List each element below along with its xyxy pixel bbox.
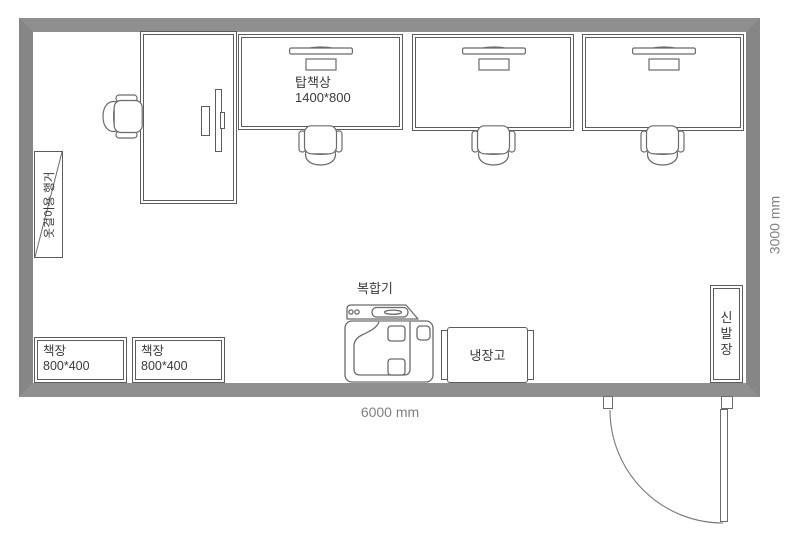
- chair-1[interactable]: [102, 94, 143, 139]
- chair-3[interactable]: [471, 125, 516, 166]
- coat-hanger[interactable]: 옷걸이용 행거: [34, 151, 63, 258]
- office-chair-icon: [640, 125, 685, 166]
- monitor-1-base: [201, 106, 210, 136]
- office-chair-icon: [298, 125, 343, 166]
- shoe-cabinet-char: 발: [721, 326, 733, 342]
- printer-label: 복합기: [357, 281, 393, 296]
- shoe-cabinet[interactable]: 신 발 장: [710, 285, 743, 383]
- bottom-dimension-label: 6000 mm: [330, 404, 450, 420]
- office-chair-icon: [471, 125, 516, 166]
- monitor-top-icon: [462, 41, 526, 71]
- fridge[interactable]: 냉장고: [447, 327, 528, 383]
- monitor-1-stand: [220, 112, 225, 129]
- fridge-label: 냉장고: [470, 348, 506, 363]
- monitor-top-icon: [632, 41, 696, 71]
- bookshelf-label-size: 800*400: [43, 359, 126, 374]
- door-swing-arc: [606, 405, 728, 527]
- bookshelf-label-name: 책장: [43, 344, 126, 359]
- monitor-3[interactable]: [462, 41, 526, 71]
- desk-4[interactable]: [582, 34, 744, 131]
- shoe-cabinet-char: 장: [721, 342, 733, 358]
- office-chair-icon: [102, 94, 143, 139]
- fridge-right-hinge: [527, 330, 534, 380]
- desk-label-name: 탑책상: [295, 75, 351, 90]
- desk-2[interactable]: 탑책상 1400*800: [238, 34, 403, 130]
- printer[interactable]: [344, 302, 435, 383]
- monitor-top-icon: [289, 41, 353, 71]
- desk-label-size: 1400*800: [295, 90, 351, 105]
- monitor-2[interactable]: [289, 41, 353, 71]
- bookshelf-2[interactable]: 책장 800*400: [132, 337, 225, 383]
- hanger-label: 옷걸이용 행거: [41, 171, 57, 238]
- monitor-4[interactable]: [632, 41, 696, 71]
- bookshelf-label-name: 책장: [141, 344, 224, 359]
- shoe-cabinet-char: 신: [721, 310, 733, 326]
- floorplan-canvas: 탑책상 1400*800: [0, 0, 804, 541]
- right-dimension-label: 3000 mm: [767, 183, 783, 268]
- chair-2[interactable]: [298, 125, 343, 166]
- desk-label: 탑책상 1400*800: [295, 75, 351, 105]
- desk-3[interactable]: [412, 34, 574, 131]
- printer-icon: [344, 302, 435, 383]
- bookshelf-label-size: 800*400: [141, 359, 224, 374]
- chair-4[interactable]: [640, 125, 685, 166]
- bookshelf-1[interactable]: 책장 800*400: [34, 337, 127, 383]
